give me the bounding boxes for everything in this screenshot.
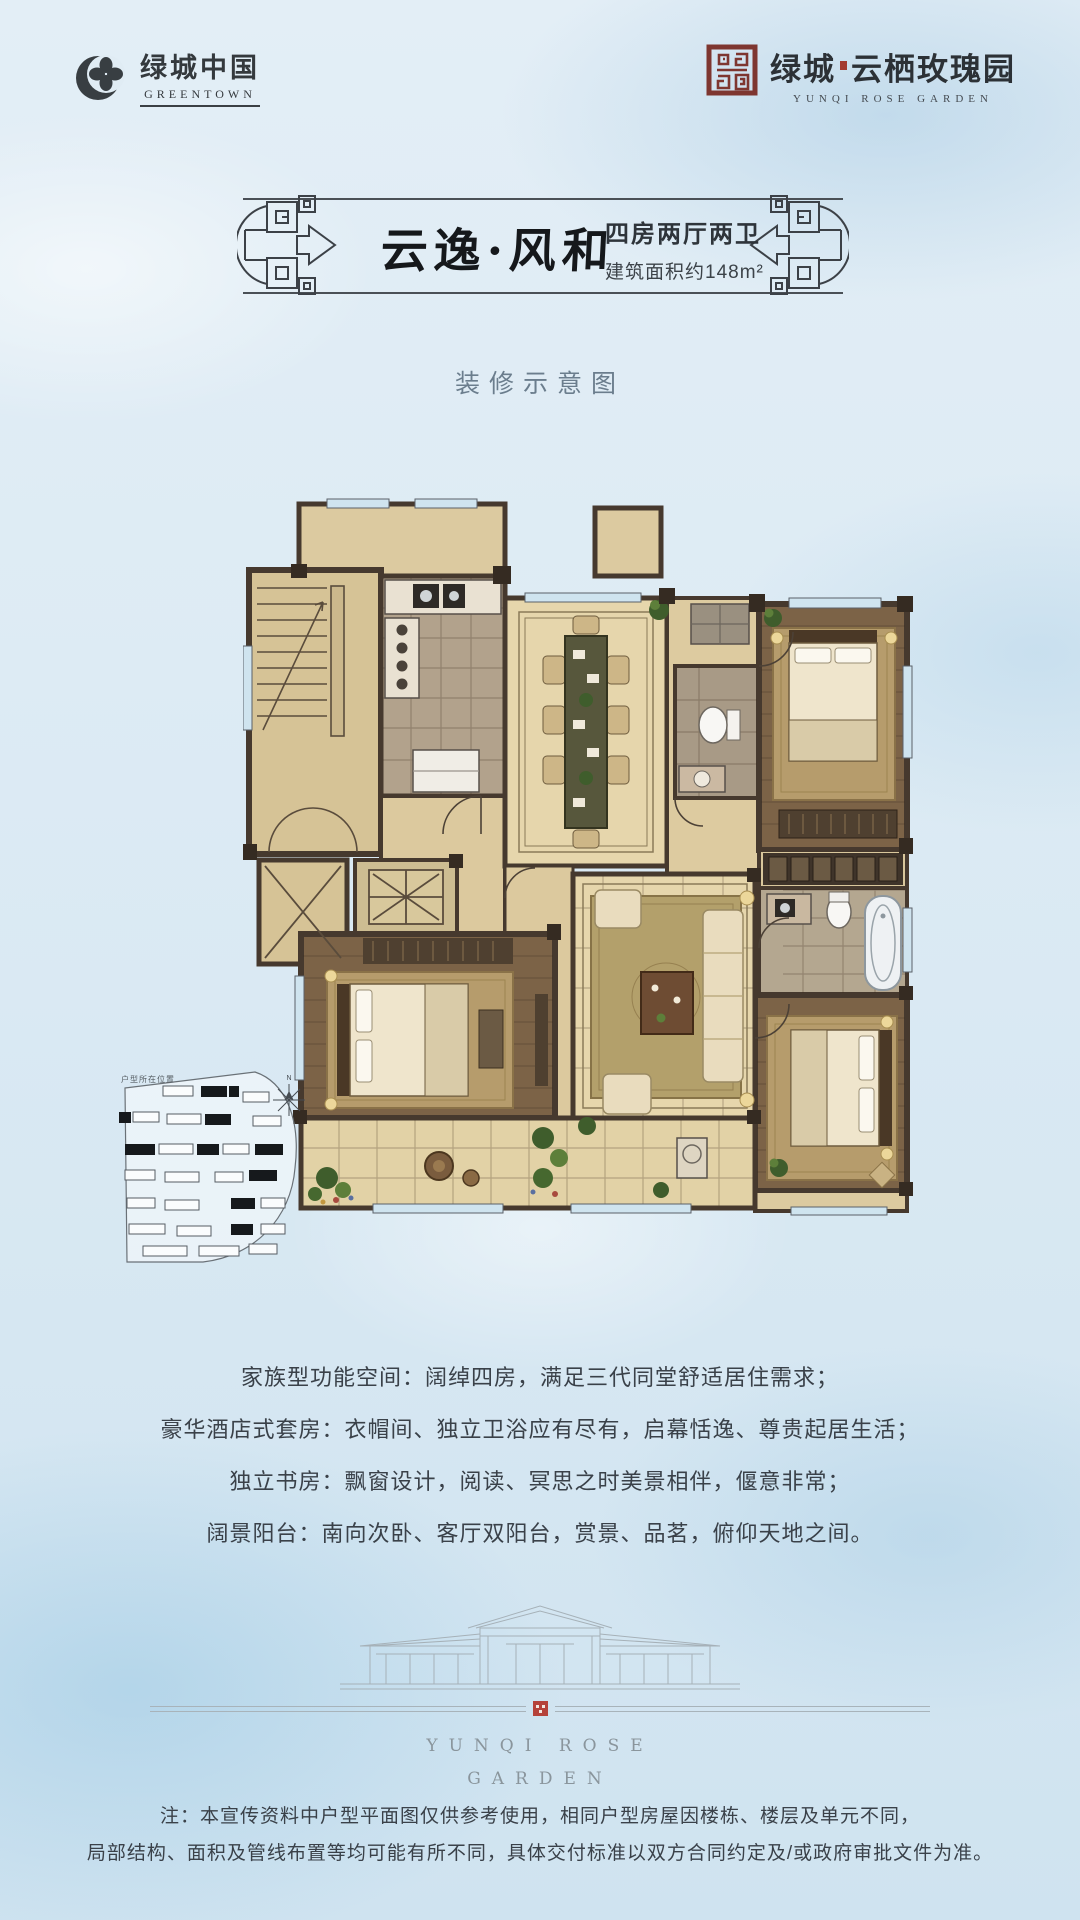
project-red-dot — [840, 61, 847, 70]
divider-line-left — [150, 1706, 526, 1712]
project-seal-icon — [706, 44, 758, 96]
feature-line: 豪华酒店式套房：衣帽间、独立卫浴应有尽有，启幕恬逸、尊贵起居生活； — [0, 1404, 1080, 1456]
garden-wordmark: YUNQI ROSE GARDEN — [0, 1730, 1080, 1796]
decoration-caption: 装修示意图 — [0, 364, 1080, 400]
floorplan-foyer-cabinet — [691, 604, 749, 644]
unit-area: 建筑面积约148m² — [605, 257, 764, 284]
wordmark-line1: YUNQI ROSE — [0, 1730, 1080, 1763]
feature-line: 阔景阳台：南向次卧、客厅双阳台，赏景、品茗，俯仰天地之间。 — [0, 1508, 1080, 1560]
siteplan-north-label: N — [286, 1075, 291, 1082]
poster-page: 绿城中国 GREENTOWN 绿城云栖玫瑰园 YUNQI ROSE GARDEN — [0, 0, 1080, 1920]
footer-divider — [150, 1701, 930, 1716]
wordmark-line2: GARDEN — [0, 1763, 1080, 1796]
banner-ornament-left-icon — [237, 192, 341, 298]
elevation-drawing — [330, 1594, 750, 1706]
feature-list: 家族型功能空间：阔绰四房，满足三代同堂舒适居住需求； 豪华酒店式套房：衣帽间、独… — [0, 1352, 1080, 1560]
floorplan-drawing — [243, 478, 915, 1220]
siteplan-map: N 户型所在位置 — [103, 1056, 315, 1272]
project-cn-prefix: 绿城 — [770, 52, 836, 88]
project-cn-name: 云栖玫瑰园 — [851, 52, 1016, 88]
floorplan-bedroom2-furniture — [767, 1016, 897, 1188]
floorplan-closet-cabinets — [763, 853, 903, 885]
disclaimer-line1: 注：本宣传资料中户型平面图仅供参考使用，相同户型房屋因楼栋、楼层及单元不同， — [0, 1798, 1080, 1835]
feature-line: 独立书房：飘窗设计，阅读、冥思之时美景相伴，偃意非常； — [0, 1456, 1080, 1508]
project-logo: 绿城云栖玫瑰园 YUNQI ROSE GARDEN — [706, 44, 1016, 105]
disclaimer-text: 注：本宣传资料中户型平面图仅供参考使用，相同户型房屋因楼栋、楼层及单元不同， 局… — [0, 1798, 1080, 1872]
greentown-en-label: GREENTOWN — [140, 87, 260, 107]
project-cn-label: 绿城云栖玫瑰园 — [770, 44, 1016, 89]
unit-layout: 四房两厅两卫 — [605, 214, 764, 249]
divider-line-right — [555, 1706, 931, 1712]
divider-seal-icon — [533, 1701, 548, 1716]
unit-title: 云逸·风和 — [379, 212, 617, 281]
greentown-crescent-icon — [72, 48, 130, 106]
feature-line: 家族型功能空间：阔绰四房，满足三代同堂舒适居住需求； — [0, 1352, 1080, 1404]
title-banner: 云逸·风和 四房两厅两卫 建筑面积约148m² — [243, 198, 843, 294]
project-en-label: YUNQI ROSE GARDEN — [770, 93, 1016, 105]
disclaimer-line2: 局部结构、面积及管线布置等均可能有所不同，具体交付标准以双方合同约定及/或政府审… — [0, 1835, 1080, 1872]
floorplan-living-furniture — [578, 884, 754, 1135]
greentown-cn-label: 绿城中国 — [140, 53, 260, 84]
siteplan-label: 户型所在位置 — [121, 1074, 175, 1084]
greentown-logo: 绿城中国 GREENTOWN — [72, 46, 260, 107]
